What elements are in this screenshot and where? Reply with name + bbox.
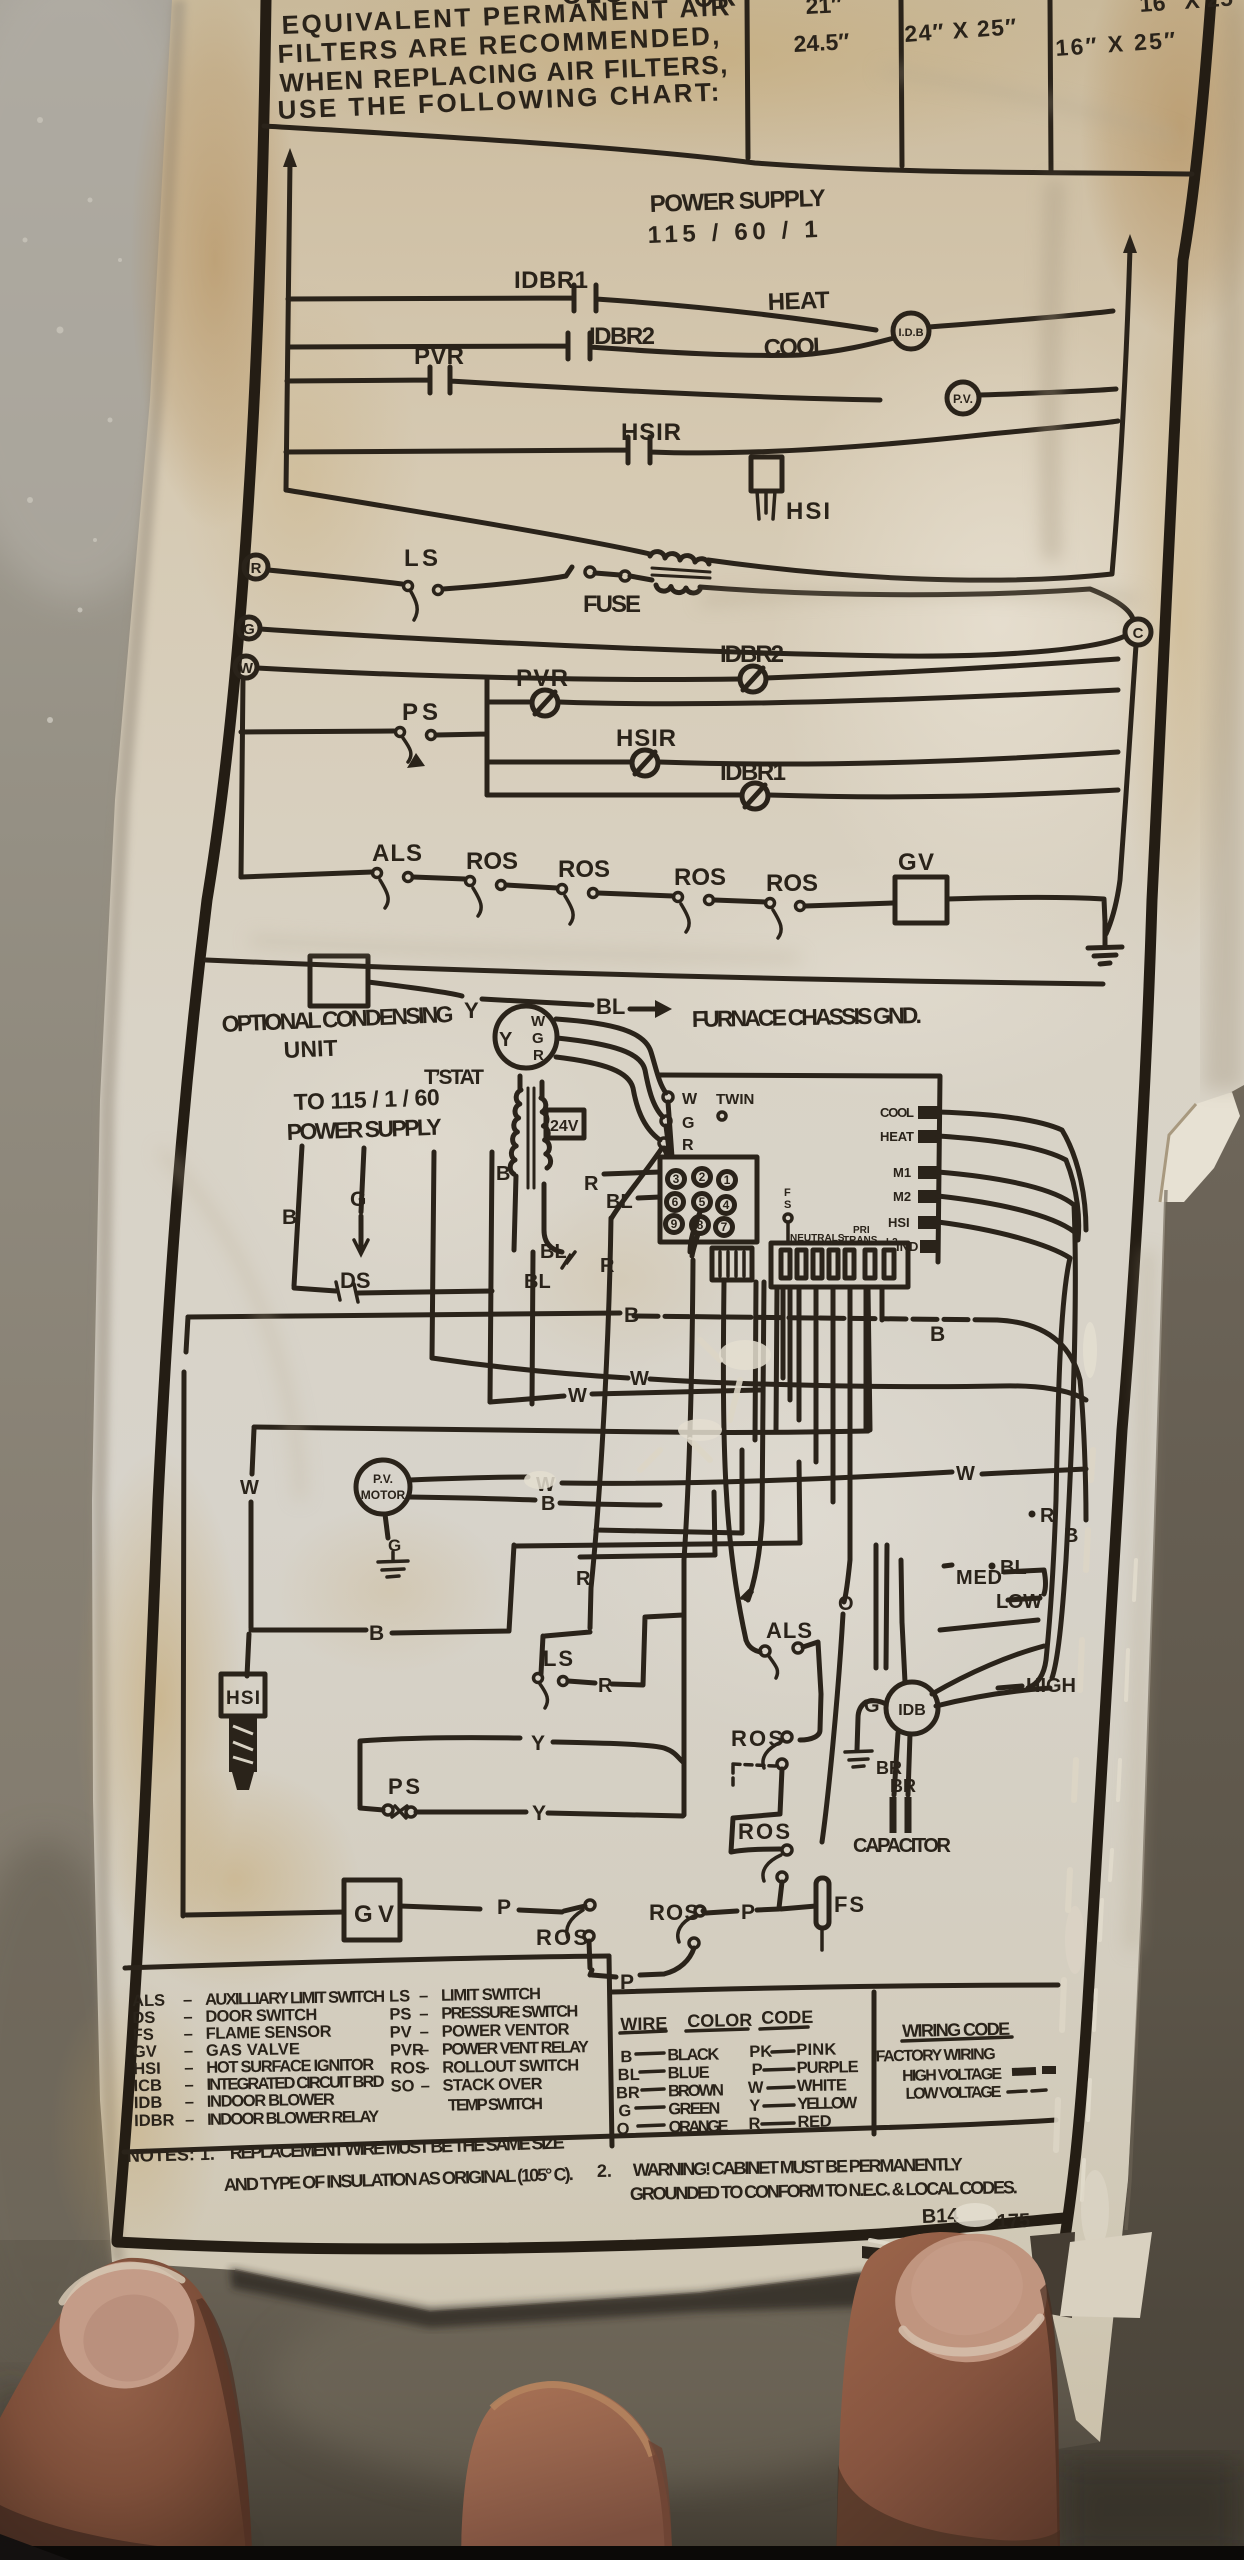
svg-text:POWER VENTOR: POWER VENTOR <box>442 2021 570 2041</box>
svg-text:HSI: HSI <box>226 1688 260 1709</box>
svg-text:BR: BR <box>876 1758 902 1778</box>
svg-text:ROS: ROS <box>649 1900 699 1925</box>
svg-text:R: R <box>576 1568 591 1590</box>
svg-text:7: 7 <box>721 1220 728 1234</box>
svg-text:5: 5 <box>699 1195 706 1209</box>
svg-text:R: R <box>748 2115 760 2133</box>
svg-text:2: 2 <box>699 1170 706 1184</box>
svg-text:BLACK: BLACK <box>667 2046 719 2065</box>
svg-text:HEAT: HEAT <box>767 287 830 316</box>
svg-text:P: P <box>741 1901 755 1924</box>
svg-text:COOL: COOL <box>880 1105 914 1120</box>
svg-text:IDBR2: IDBR2 <box>589 323 655 350</box>
svg-text:GREEN: GREEN <box>668 2100 720 2119</box>
svg-text:B: B <box>1064 1525 1078 1547</box>
svg-text:PRI: PRI <box>853 1225 870 1236</box>
svg-text:HSI: HSI <box>133 2060 161 2078</box>
svg-text:R: R <box>584 1173 599 1195</box>
svg-text:B: B <box>930 1323 945 1346</box>
svg-text:POWER SUPPLY: POWER SUPPLY <box>286 1114 442 1145</box>
svg-text:C: C <box>1133 625 1144 642</box>
svg-text:HSIR: HSIR <box>621 419 681 446</box>
svg-text:ROS: ROS <box>466 848 518 875</box>
svg-text:TRANS: TRANS <box>843 1235 878 1246</box>
svg-text:PRESSURE SWITCH: PRESSURE SWITCH <box>441 2002 578 2022</box>
svg-text:FS: FS <box>133 2026 154 2044</box>
svg-text:BROWN: BROWN <box>668 2081 724 2100</box>
svg-text:R: R <box>1040 1505 1055 1527</box>
svg-text:IDB: IDB <box>134 2094 163 2112</box>
svg-text:INDOOR BLOWER RELAY: INDOOR BLOWER RELAY <box>207 2108 379 2129</box>
svg-text:24V: 24V <box>550 1118 579 1135</box>
svg-text:–: – <box>185 2093 195 2111</box>
svg-text:FUSE: FUSE <box>583 591 641 618</box>
svg-text:BL: BL <box>540 1241 567 1263</box>
svg-text:6: 6 <box>672 1195 679 1209</box>
svg-text:IDBR1: IDBR1 <box>720 759 786 786</box>
svg-text:B: B <box>282 1206 297 1229</box>
svg-text:BL: BL <box>1000 1557 1027 1579</box>
svg-text:–: – <box>420 2077 430 2095</box>
svg-text:–: – <box>183 1991 193 2009</box>
svg-text:G: G <box>682 1115 694 1132</box>
svg-text:P: P <box>751 2061 762 2079</box>
svg-text:O: O <box>617 2120 630 2138</box>
svg-text:BR: BR <box>890 1776 916 1796</box>
svg-text:Y: Y <box>499 1029 513 1051</box>
svg-text:MED: MED <box>956 1567 1002 1589</box>
svg-text:M1: M1 <box>893 1165 911 1180</box>
svg-text:NEUTRALS: NEUTRALS <box>790 1233 845 1244</box>
svg-text:LS: LS <box>543 1646 573 1671</box>
svg-text:BR: BR <box>616 2084 640 2102</box>
svg-text:W: W <box>239 660 254 677</box>
svg-text:P.V.: P.V. <box>953 392 973 406</box>
svg-text:175: 175 <box>996 2210 1030 2233</box>
svg-text:2.: 2. <box>597 2161 612 2181</box>
svg-text:ROS: ROS <box>731 1726 783 1751</box>
svg-text:INDOOR BLOWER: INDOOR BLOWER <box>207 2091 335 2111</box>
svg-text:BL: BL <box>618 2066 640 2084</box>
svg-text:B: B <box>496 1163 510 1185</box>
svg-text:ROLLOUT SWITCH: ROLLOUT SWITCH <box>442 2056 579 2076</box>
svg-text:G: G <box>350 1188 366 1211</box>
svg-text:PS: PS <box>389 2005 411 2023</box>
svg-text:–: – <box>184 2042 194 2060</box>
svg-text:1: 1 <box>724 1173 731 1187</box>
svg-text:IDBR: IDBR <box>134 2111 175 2130</box>
svg-text:COOL: COOL <box>763 333 828 362</box>
svg-text:B: B <box>620 2048 632 2066</box>
svg-text:ROS: ROS <box>536 1925 588 1950</box>
svg-text:–: – <box>184 2059 194 2077</box>
svg-text:TO 115 / 1 / 60: TO 115 / 1 / 60 <box>293 1084 440 1115</box>
svg-text:FACTORY WIRING: FACTORY WIRING <box>876 2046 996 2066</box>
svg-text:TWIN: TWIN <box>716 1091 754 1108</box>
svg-text:–: – <box>184 2076 194 2094</box>
svg-text:W: W <box>568 1385 587 1407</box>
svg-text:I.D.B: I.D.B <box>898 327 923 339</box>
svg-text:O: O <box>838 1593 854 1615</box>
svg-text:ICB: ICB <box>133 2077 162 2095</box>
svg-text:HEAT: HEAT <box>880 1129 914 1144</box>
svg-text:R: R <box>682 1137 694 1154</box>
svg-text:FURNACE CHASSIS GND.: FURNACE CHASSIS GND. <box>692 1002 922 1032</box>
svg-text:Y: Y <box>749 2097 760 2115</box>
svg-text:GV: GV <box>898 849 934 876</box>
svg-text:GV: GV <box>133 2043 157 2061</box>
svg-text:UNIT: UNIT <box>283 1035 338 1063</box>
svg-text:Y: Y <box>464 998 479 1023</box>
svg-text:–: – <box>419 1987 429 2005</box>
svg-text:HSI: HSI <box>888 1215 910 1230</box>
svg-text:LOW: LOW <box>996 1591 1042 1613</box>
svg-text:G: G <box>618 2102 631 2120</box>
svg-text:WHITE: WHITE <box>797 2076 847 2095</box>
svg-text:R: R <box>533 1047 544 1064</box>
svg-text:21″: 21″ <box>805 0 843 19</box>
svg-text:MOTOR: MOTOR <box>361 1488 406 1502</box>
svg-text:PVR: PVR <box>516 665 568 692</box>
svg-text:M2: M2 <box>893 1189 911 1204</box>
svg-text:STACK OVER: STACK OVER <box>442 2075 542 2095</box>
svg-text:ALS: ALS <box>132 1992 165 2011</box>
svg-text:P: P <box>497 1896 511 1919</box>
svg-text:F: F <box>784 1187 791 1199</box>
svg-text:W: W <box>531 1013 546 1030</box>
svg-text:LOW VOLTAGE: LOW VOLTAGE <box>905 2084 1002 2103</box>
svg-text:–: – <box>185 2111 195 2129</box>
svg-text:W: W <box>240 1477 259 1499</box>
svg-text:BLUE: BLUE <box>668 2064 710 2083</box>
svg-text:HSIR: HSIR <box>616 725 676 752</box>
svg-text:W: W <box>682 1091 698 1108</box>
svg-text:PV: PV <box>390 2023 412 2041</box>
svg-text:IDB: IDB <box>898 1702 926 1719</box>
svg-text:Y: Y <box>532 1802 546 1825</box>
svg-text:B: B <box>369 1622 384 1645</box>
svg-text:–: – <box>184 2025 194 2043</box>
svg-text:LS: LS <box>389 1987 410 2005</box>
svg-text:HIGH VOLTAGE: HIGH VOLTAGE <box>902 2066 1003 2085</box>
svg-text:SO: SO <box>390 2077 414 2095</box>
svg-text:–: – <box>420 2023 430 2041</box>
svg-text:–: – <box>420 2041 430 2059</box>
svg-text:FS: FS <box>834 1892 864 1917</box>
svg-text:DS: DS <box>132 2009 155 2027</box>
svg-text:NOTES: 1.: NOTES: 1. <box>127 2144 216 2166</box>
svg-text:Y: Y <box>531 1732 545 1755</box>
svg-text:YELLOW: YELLOW <box>797 2094 858 2113</box>
svg-text:4: 4 <box>723 1198 730 1212</box>
svg-text:ALS: ALS <box>372 840 422 867</box>
svg-text:PINK: PINK <box>796 2040 836 2059</box>
svg-text:P.V.: P.V. <box>373 1472 393 1486</box>
svg-text:9: 9 <box>671 1217 678 1231</box>
svg-text:G: G <box>864 1695 880 1717</box>
svg-text:W: W <box>630 1368 649 1390</box>
svg-text:W: W <box>748 2079 764 2097</box>
svg-text:G: G <box>388 1536 401 1555</box>
svg-text:24.5″: 24.5″ <box>793 28 850 57</box>
svg-text:HSI: HSI <box>786 498 830 525</box>
svg-text:G: G <box>243 621 255 638</box>
svg-text:PURPLE: PURPLE <box>796 2058 858 2077</box>
svg-text:CAPACITOR: CAPACITOR <box>853 1835 952 1857</box>
svg-text:LS: LS <box>404 545 438 572</box>
svg-text:PK: PK <box>749 2043 772 2061</box>
svg-text:–: – <box>419 2005 429 2023</box>
svg-text:RED: RED <box>797 2113 831 2132</box>
svg-text:IND: IND <box>896 1239 918 1254</box>
svg-text:G: G <box>532 1030 544 1047</box>
svg-text:B: B <box>624 1304 639 1327</box>
svg-text:BL: BL <box>596 994 625 1019</box>
svg-text:R: R <box>598 1675 613 1697</box>
svg-text:PVR: PVR <box>414 343 464 370</box>
svg-text:B: B <box>541 1493 555 1515</box>
svg-text:ROS: ROS <box>738 1819 790 1844</box>
svg-text:LIMIT SWITCH: LIMIT SWITCH <box>441 1985 541 2005</box>
svg-text:ROS: ROS <box>558 856 610 883</box>
svg-text:ORANGE: ORANGE <box>668 2117 728 2136</box>
svg-text:HIGH: HIGH <box>1026 1675 1076 1697</box>
svg-text:CODE: CODE <box>761 2007 813 2028</box>
svg-text:–: – <box>183 2008 193 2026</box>
svg-text:BL: BL <box>524 1271 551 1293</box>
svg-text:W: W <box>956 1463 975 1485</box>
svg-text:S: S <box>784 1199 791 1211</box>
svg-text:DS: DS <box>340 1268 371 1293</box>
svg-text:IDBR1: IDBR1 <box>514 267 588 294</box>
svg-text:TEMP SWITCH: TEMP SWITCH <box>448 2095 543 2115</box>
svg-text:–: – <box>420 2059 430 2077</box>
svg-text:ROS: ROS <box>674 864 726 891</box>
svg-text:IDBR2: IDBR2 <box>720 641 784 668</box>
svg-text:ALS: ALS <box>766 1618 812 1643</box>
svg-text:ROS: ROS <box>766 870 818 897</box>
svg-text:3: 3 <box>673 1172 680 1186</box>
svg-text:R: R <box>251 560 262 577</box>
